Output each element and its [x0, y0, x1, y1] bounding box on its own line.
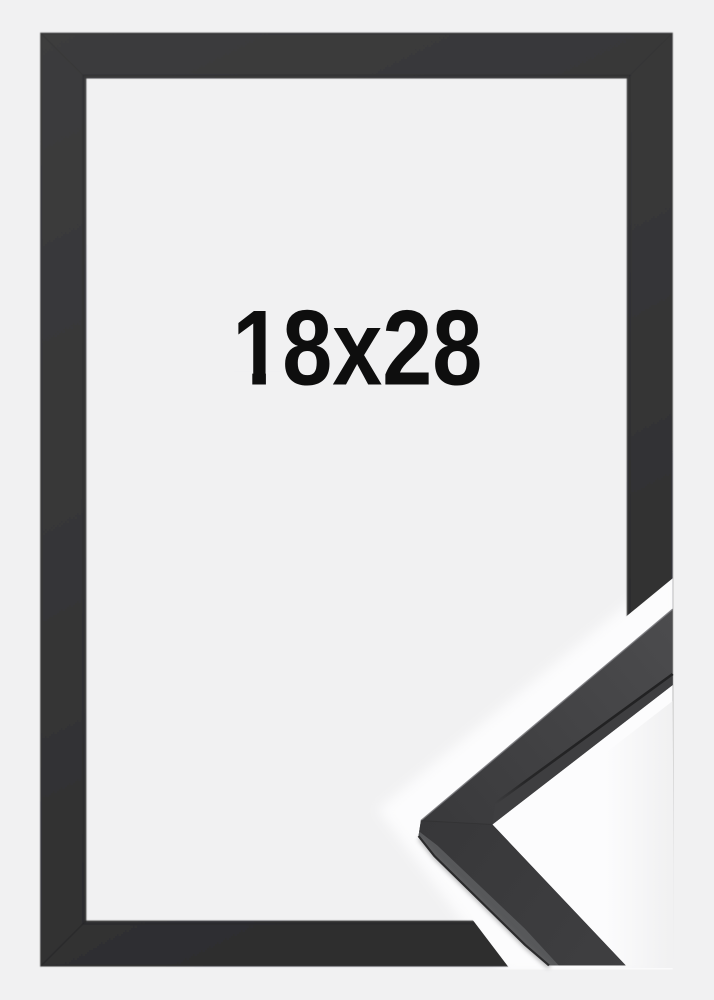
svg-text:18x28: 18x28 [232, 289, 482, 408]
